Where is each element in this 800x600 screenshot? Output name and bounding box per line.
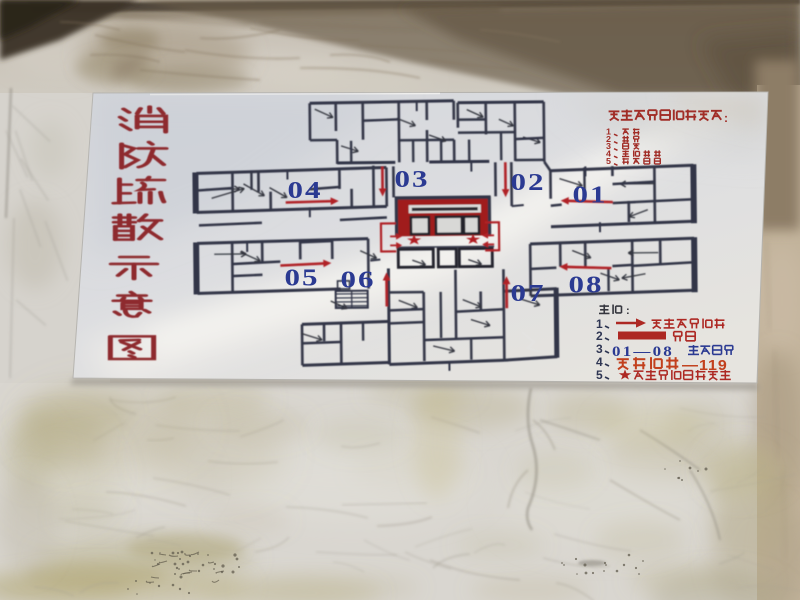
svg-text:01: 01 bbox=[573, 182, 608, 209]
svg-text:5: 5 bbox=[606, 156, 611, 165]
svg-text:3: 3 bbox=[596, 342, 603, 356]
svg-text:5: 5 bbox=[596, 368, 603, 382]
svg-text:2: 2 bbox=[596, 329, 603, 343]
svg-text:07: 07 bbox=[511, 280, 546, 307]
svg-text:03: 03 bbox=[395, 166, 430, 193]
svg-text:05: 05 bbox=[285, 265, 320, 292]
svg-text:06: 06 bbox=[341, 267, 376, 294]
svg-text:01—08: 01—08 bbox=[612, 344, 674, 360]
svg-text:08: 08 bbox=[569, 272, 604, 299]
svg-text::: : bbox=[724, 111, 728, 125]
svg-text:04: 04 bbox=[288, 177, 323, 204]
svg-text:4: 4 bbox=[596, 355, 603, 369]
svg-text:02: 02 bbox=[511, 169, 546, 196]
svg-text::: : bbox=[626, 305, 630, 317]
